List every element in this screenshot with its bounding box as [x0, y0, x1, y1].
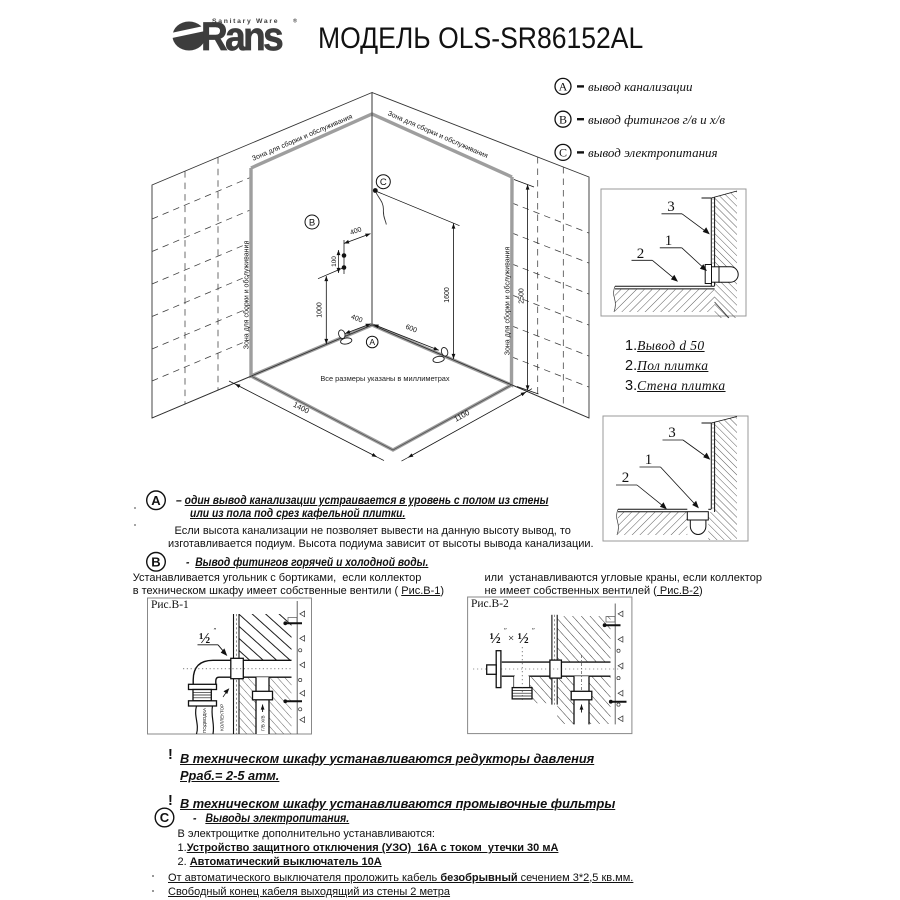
svg-text:®: ®	[293, 18, 297, 25]
svg-text:½: ½	[518, 631, 529, 647]
svg-text:Все размеры указаны в миллимет: Все размеры указаны в миллиметрах	[320, 374, 450, 383]
svg-text:1: 1	[665, 233, 673, 249]
svg-text:1400: 1400	[292, 400, 311, 416]
svg-text:Зона для сборки и обслуживания: Зона для сборки и обслуживания	[386, 109, 489, 160]
svg-text:Зона для сборки и обслуживания: Зона для сборки и обслуживания	[251, 113, 354, 163]
svg-text:Г/В Х/В: Г/В Х/В	[261, 715, 266, 731]
svg-text:B: B	[559, 112, 567, 126]
svg-text:Зона для сборки и обслуживания: Зона для сборки и обслуживания	[504, 247, 512, 356]
svg-text:1: 1	[645, 452, 653, 468]
svg-text:B: B	[151, 555, 160, 570]
svg-text:1000: 1000	[317, 302, 324, 318]
svg-text:2: 2	[622, 470, 630, 486]
svg-text:1600: 1600	[444, 287, 451, 303]
svg-text:″: ″	[532, 627, 535, 635]
svg-text:100: 100	[331, 256, 338, 267]
svg-text:Зона для сборки и обслуживания: Зона для сборки и обслуживания	[243, 241, 251, 350]
svg-text:Sanitary Ware: Sanitary Ware	[212, 18, 279, 25]
svg-text:2: 2	[637, 246, 645, 262]
svg-text:B: B	[309, 218, 315, 229]
svg-text:½: ½	[490, 631, 501, 647]
svg-text:400: 400	[350, 314, 364, 325]
svg-text:3: 3	[667, 199, 675, 215]
svg-text:C: C	[559, 146, 567, 160]
svg-text:C: C	[380, 177, 387, 188]
svg-text:C: C	[160, 810, 170, 825]
svg-text:″: ″	[504, 627, 507, 635]
svg-text:ПОДВОДКА: ПОДВОДКА	[202, 707, 207, 733]
svg-text:КОЛЛЕКТОР: КОЛЛЕКТОР	[220, 704, 225, 731]
svg-text:600: 600	[404, 324, 418, 335]
svg-text:A: A	[369, 337, 375, 347]
svg-text:3: 3	[668, 425, 676, 441]
svg-text:400: 400	[349, 226, 362, 237]
svg-text:″: ″	[214, 627, 217, 635]
svg-text:×: ×	[508, 633, 514, 645]
svg-text:2500: 2500	[519, 288, 526, 304]
svg-text:A: A	[151, 493, 161, 508]
svg-text:A: A	[559, 80, 568, 94]
